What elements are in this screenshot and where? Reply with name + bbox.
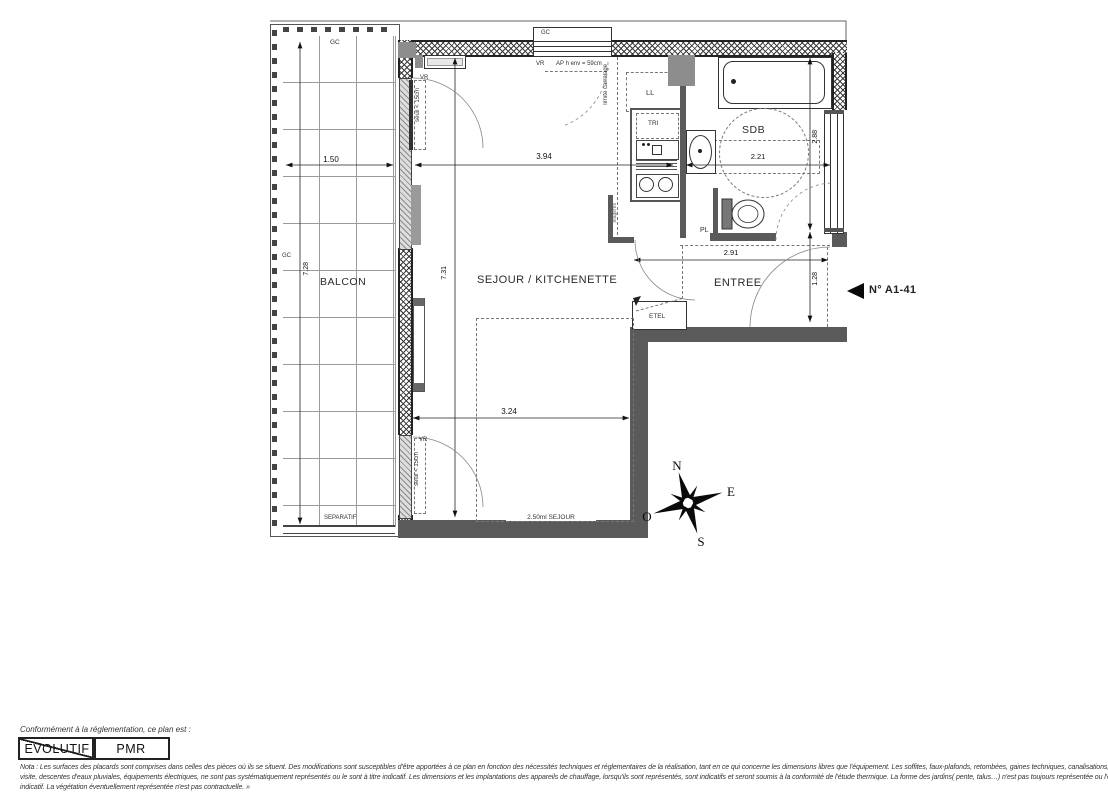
compass-north-label: N — [672, 458, 682, 473]
etel-door-hinge — [633, 296, 641, 306]
stamp-pmr-label: PMR — [116, 742, 145, 756]
door-arcs — [413, 62, 833, 507]
stamp-evolutif: EVOLUTIF — [18, 737, 96, 760]
canopy-line — [270, 21, 846, 40]
nota-line-2: visite, descentes d'eaux pluviales, équi… — [20, 774, 1108, 781]
floor-plan: GC GC BALCON 7.28 1.50 SEPARATIF VR seui… — [0, 0, 1108, 800]
footer-heading: Conformément à la réglementation, ce pla… — [20, 725, 191, 734]
toilet — [722, 199, 764, 229]
compass-west-label: O — [642, 509, 651, 524]
compass-east-label: E — [727, 484, 735, 499]
plan-linework: N E S O — [0, 0, 1108, 800]
etel-door-line — [636, 298, 684, 311]
nota-line-3: indicatif. La végétation éventuellement … — [20, 784, 250, 791]
nota-line-1: Nota : Les surfaces des placards sont co… — [20, 764, 1108, 771]
stamp-pmr: PMR — [92, 737, 170, 760]
stamp-evolutif-label: EVOLUTIF — [24, 742, 89, 756]
compass-rose-icon — [644, 462, 732, 544]
compass-south-label: S — [697, 534, 704, 549]
dimension-lines — [286, 42, 830, 524]
